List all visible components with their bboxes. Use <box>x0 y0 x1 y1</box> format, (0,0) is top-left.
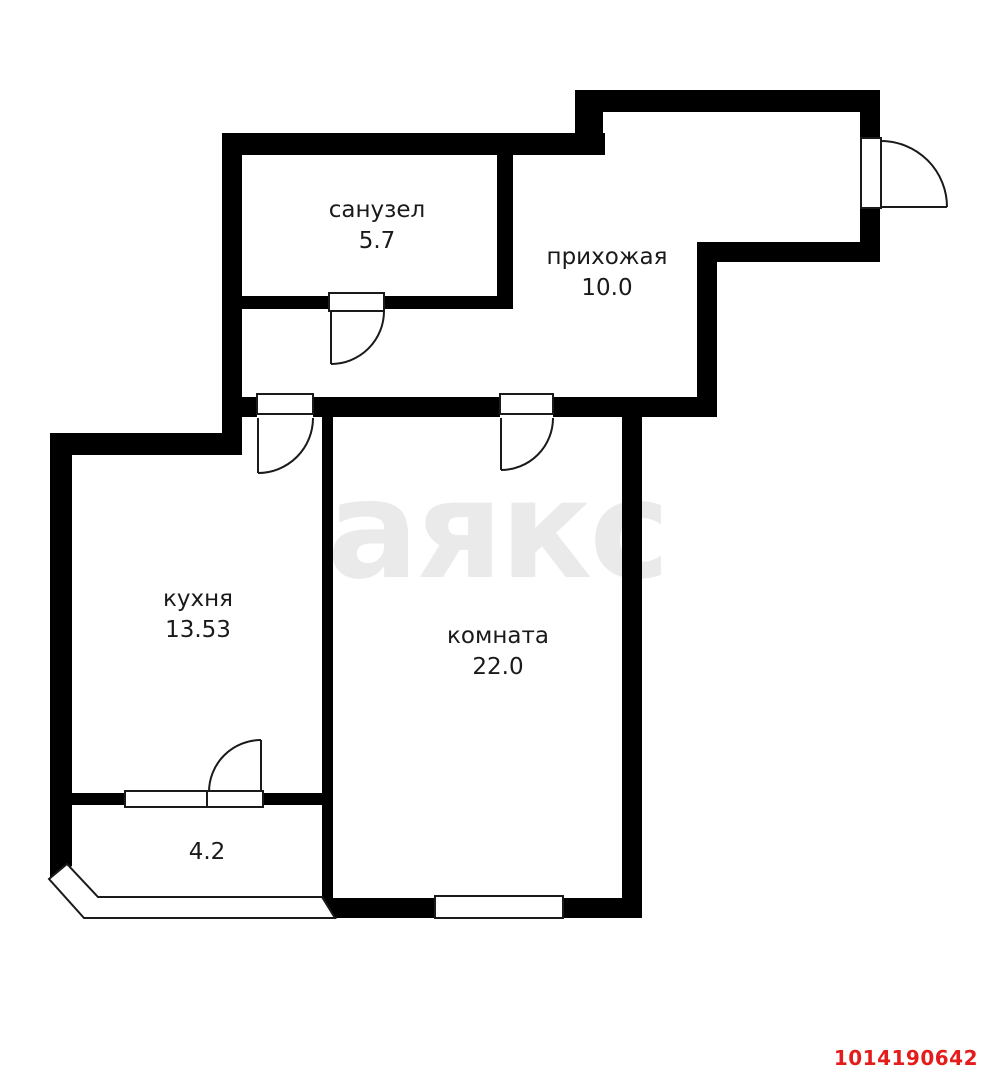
wall-bathroom-right <box>497 152 513 309</box>
listing-id: 1014190642 <box>834 1046 978 1070</box>
hallway-label: прихожая 10.0 <box>547 242 668 304</box>
doors <box>209 141 947 792</box>
wall-bathroom-bottom-right <box>384 296 513 309</box>
kitchen-door-arc-icon <box>258 418 313 473</box>
kitchen-label: кухня 13.53 <box>163 584 233 646</box>
room-door-arc-icon <box>501 418 553 470</box>
room-label: комната 22.0 <box>447 621 549 683</box>
balcony-label: 4.2 <box>189 837 226 868</box>
wall-bathroom-bottom-left <box>242 296 329 309</box>
wall-room-right <box>622 417 642 898</box>
hallway-name: прихожая <box>547 242 668 273</box>
floor-plan: аякс <box>0 0 996 1076</box>
balcony-door-arc-icon <box>209 740 261 792</box>
wall-balcony-left-seg <box>50 793 125 805</box>
kitchen-door-sill <box>257 394 313 414</box>
wall-hallway-right <box>697 242 717 417</box>
wall-main-seg1 <box>222 397 257 417</box>
wall-main-seg3 <box>553 397 717 417</box>
bathroom-name: санузел <box>329 195 425 226</box>
room-name: комната <box>447 621 549 652</box>
kitchen-name: кухня <box>163 584 233 615</box>
balcony-parapet <box>49 864 335 918</box>
balcony-area: 4.2 <box>189 837 226 868</box>
kitchen-area: 13.53 <box>163 615 233 646</box>
wall-right-above-door <box>860 112 880 140</box>
balcony-window-sill <box>125 791 263 807</box>
bathroom-area: 5.7 <box>329 226 425 257</box>
wall-kitchen-room-divider <box>322 417 333 898</box>
wall-nook-bottom <box>698 242 880 262</box>
room-door-sill <box>500 394 553 414</box>
wall-room-bottom-left <box>322 898 435 918</box>
hallway-area: 10.0 <box>547 273 668 304</box>
bathroom-door-arc-icon <box>331 311 384 364</box>
wall-kitchen-top <box>50 433 242 455</box>
wall-top-lower <box>222 133 605 155</box>
wall-balcony-right-seg <box>263 793 333 805</box>
wall-room-bottom-right <box>563 898 642 918</box>
entry-door-sill <box>861 138 881 208</box>
room-area: 22.0 <box>447 652 549 683</box>
bathroom-label: санузел 5.7 <box>329 195 425 257</box>
wall-main-seg2 <box>313 397 500 417</box>
entry-door-arc-icon <box>881 141 947 207</box>
wall-top-upper <box>575 90 880 112</box>
room-window-sill <box>435 896 563 918</box>
bathroom-door-sill <box>329 293 384 311</box>
floor-plan-drawing <box>0 0 996 1076</box>
